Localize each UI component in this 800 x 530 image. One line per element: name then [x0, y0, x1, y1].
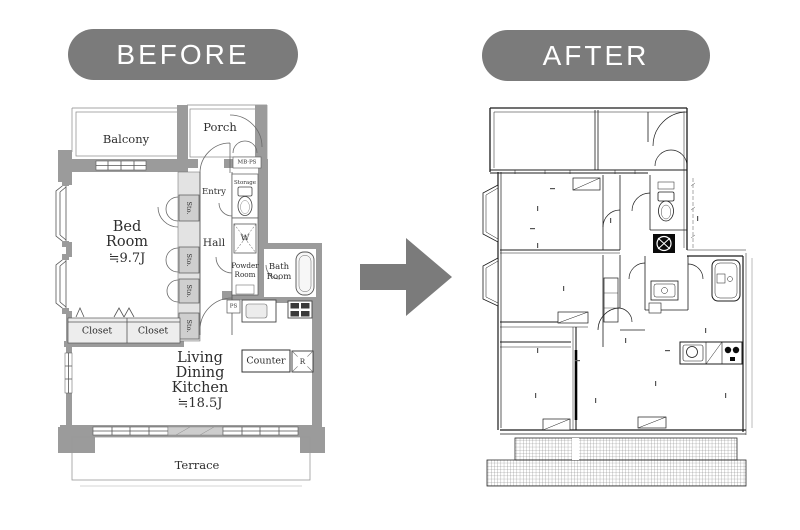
sto-label-4: Sto.: [185, 320, 193, 333]
balcony-label: Balcony: [103, 132, 150, 146]
ldk-label-1: Living: [177, 350, 223, 366]
sto-label-1: Sto.: [185, 202, 193, 215]
after-fixtures: [649, 182, 742, 364]
storage-label: Storage: [234, 180, 256, 186]
refrigerator-box: R: [292, 351, 313, 372]
bath-label-2: Room: [267, 272, 292, 282]
sto-label-2: Sto.: [185, 254, 193, 267]
before-badge: BEFORE: [68, 29, 298, 80]
after-floorplan: [475, 98, 755, 498]
kitchen-sink-icon: [242, 300, 276, 322]
vanity-icon: [649, 281, 678, 313]
dimension-marks: [530, 178, 752, 428]
bay-window-lower: [56, 254, 69, 314]
closet-left-label: Closet: [82, 326, 113, 337]
after-terrace-hatch: [487, 438, 746, 486]
ldk-label-2: Dining: [176, 365, 225, 381]
ldk-size-label: ≒18.5J: [177, 396, 222, 411]
storage-column: Sto. Sto. Sto. Sto.: [166, 172, 200, 341]
after-badge: AFTER: [482, 30, 710, 81]
right-arrow-icon: [360, 238, 452, 316]
kitchen-units: PS Counter R: [227, 300, 313, 372]
ldk-bottom-slider: [168, 427, 223, 435]
bathtub-icon: [296, 252, 314, 295]
bay-windows: [56, 180, 69, 314]
bedroom-label-1: Bed: [113, 219, 142, 235]
washer-label: W: [241, 234, 250, 244]
before-badge-label: BEFORE: [116, 39, 249, 71]
ldk-bottom-window-left: [93, 427, 168, 435]
tiny-annotation-marks: [530, 188, 726, 403]
after-outline: [490, 108, 746, 435]
closet-band: Closet Closet: [68, 308, 180, 343]
mb-ps-box: MB·PS: [233, 157, 261, 168]
powder-label-1: Powder: [231, 261, 259, 270]
fridge-label: R: [300, 357, 306, 366]
porch-label: Porch: [203, 120, 237, 134]
terrace-label: Terrace: [175, 458, 220, 472]
bedroom-label-2: Room: [106, 234, 148, 250]
counter-label: Counter: [246, 356, 286, 367]
pipe-shaft-icon: [653, 234, 675, 253]
ldk-left-window: [65, 353, 72, 393]
before-to-after-arrow: [360, 238, 452, 316]
ps-box: PS: [227, 300, 240, 313]
bay-window-upper: [56, 180, 69, 247]
before-after-floorplan-comparison: BEFORE AFTER: [0, 0, 800, 530]
after-kitchen-icon: [680, 342, 742, 364]
powder-label-2: Room: [235, 270, 256, 279]
bedroom-top-window: [96, 161, 146, 170]
hall-label: Hall: [203, 237, 226, 249]
sto-label-3: Sto.: [185, 285, 193, 298]
bath-label-1: Bath: [269, 262, 290, 272]
ps-label: PS: [230, 304, 238, 310]
before-floorplan: Sto. Sto. Sto. Sto. MB·PS Storage: [50, 95, 340, 495]
stove-icon: [288, 301, 312, 318]
after-toilet-icon: [658, 182, 674, 221]
bedroom-size-label: ≒9.7J: [109, 251, 146, 266]
after-bathtub-icon: [712, 260, 740, 301]
closet-right-label: Closet: [138, 326, 169, 337]
mb-ps-label: MB·PS: [238, 160, 257, 166]
after-badge-label: AFTER: [543, 40, 650, 72]
after-bay-windows: [483, 185, 498, 306]
ldk-label-3: Kitchen: [172, 380, 229, 396]
entry-label: Entry: [202, 187, 226, 197]
ldk-bottom-window-right: [223, 427, 298, 435]
counter-box: Counter: [242, 350, 290, 372]
